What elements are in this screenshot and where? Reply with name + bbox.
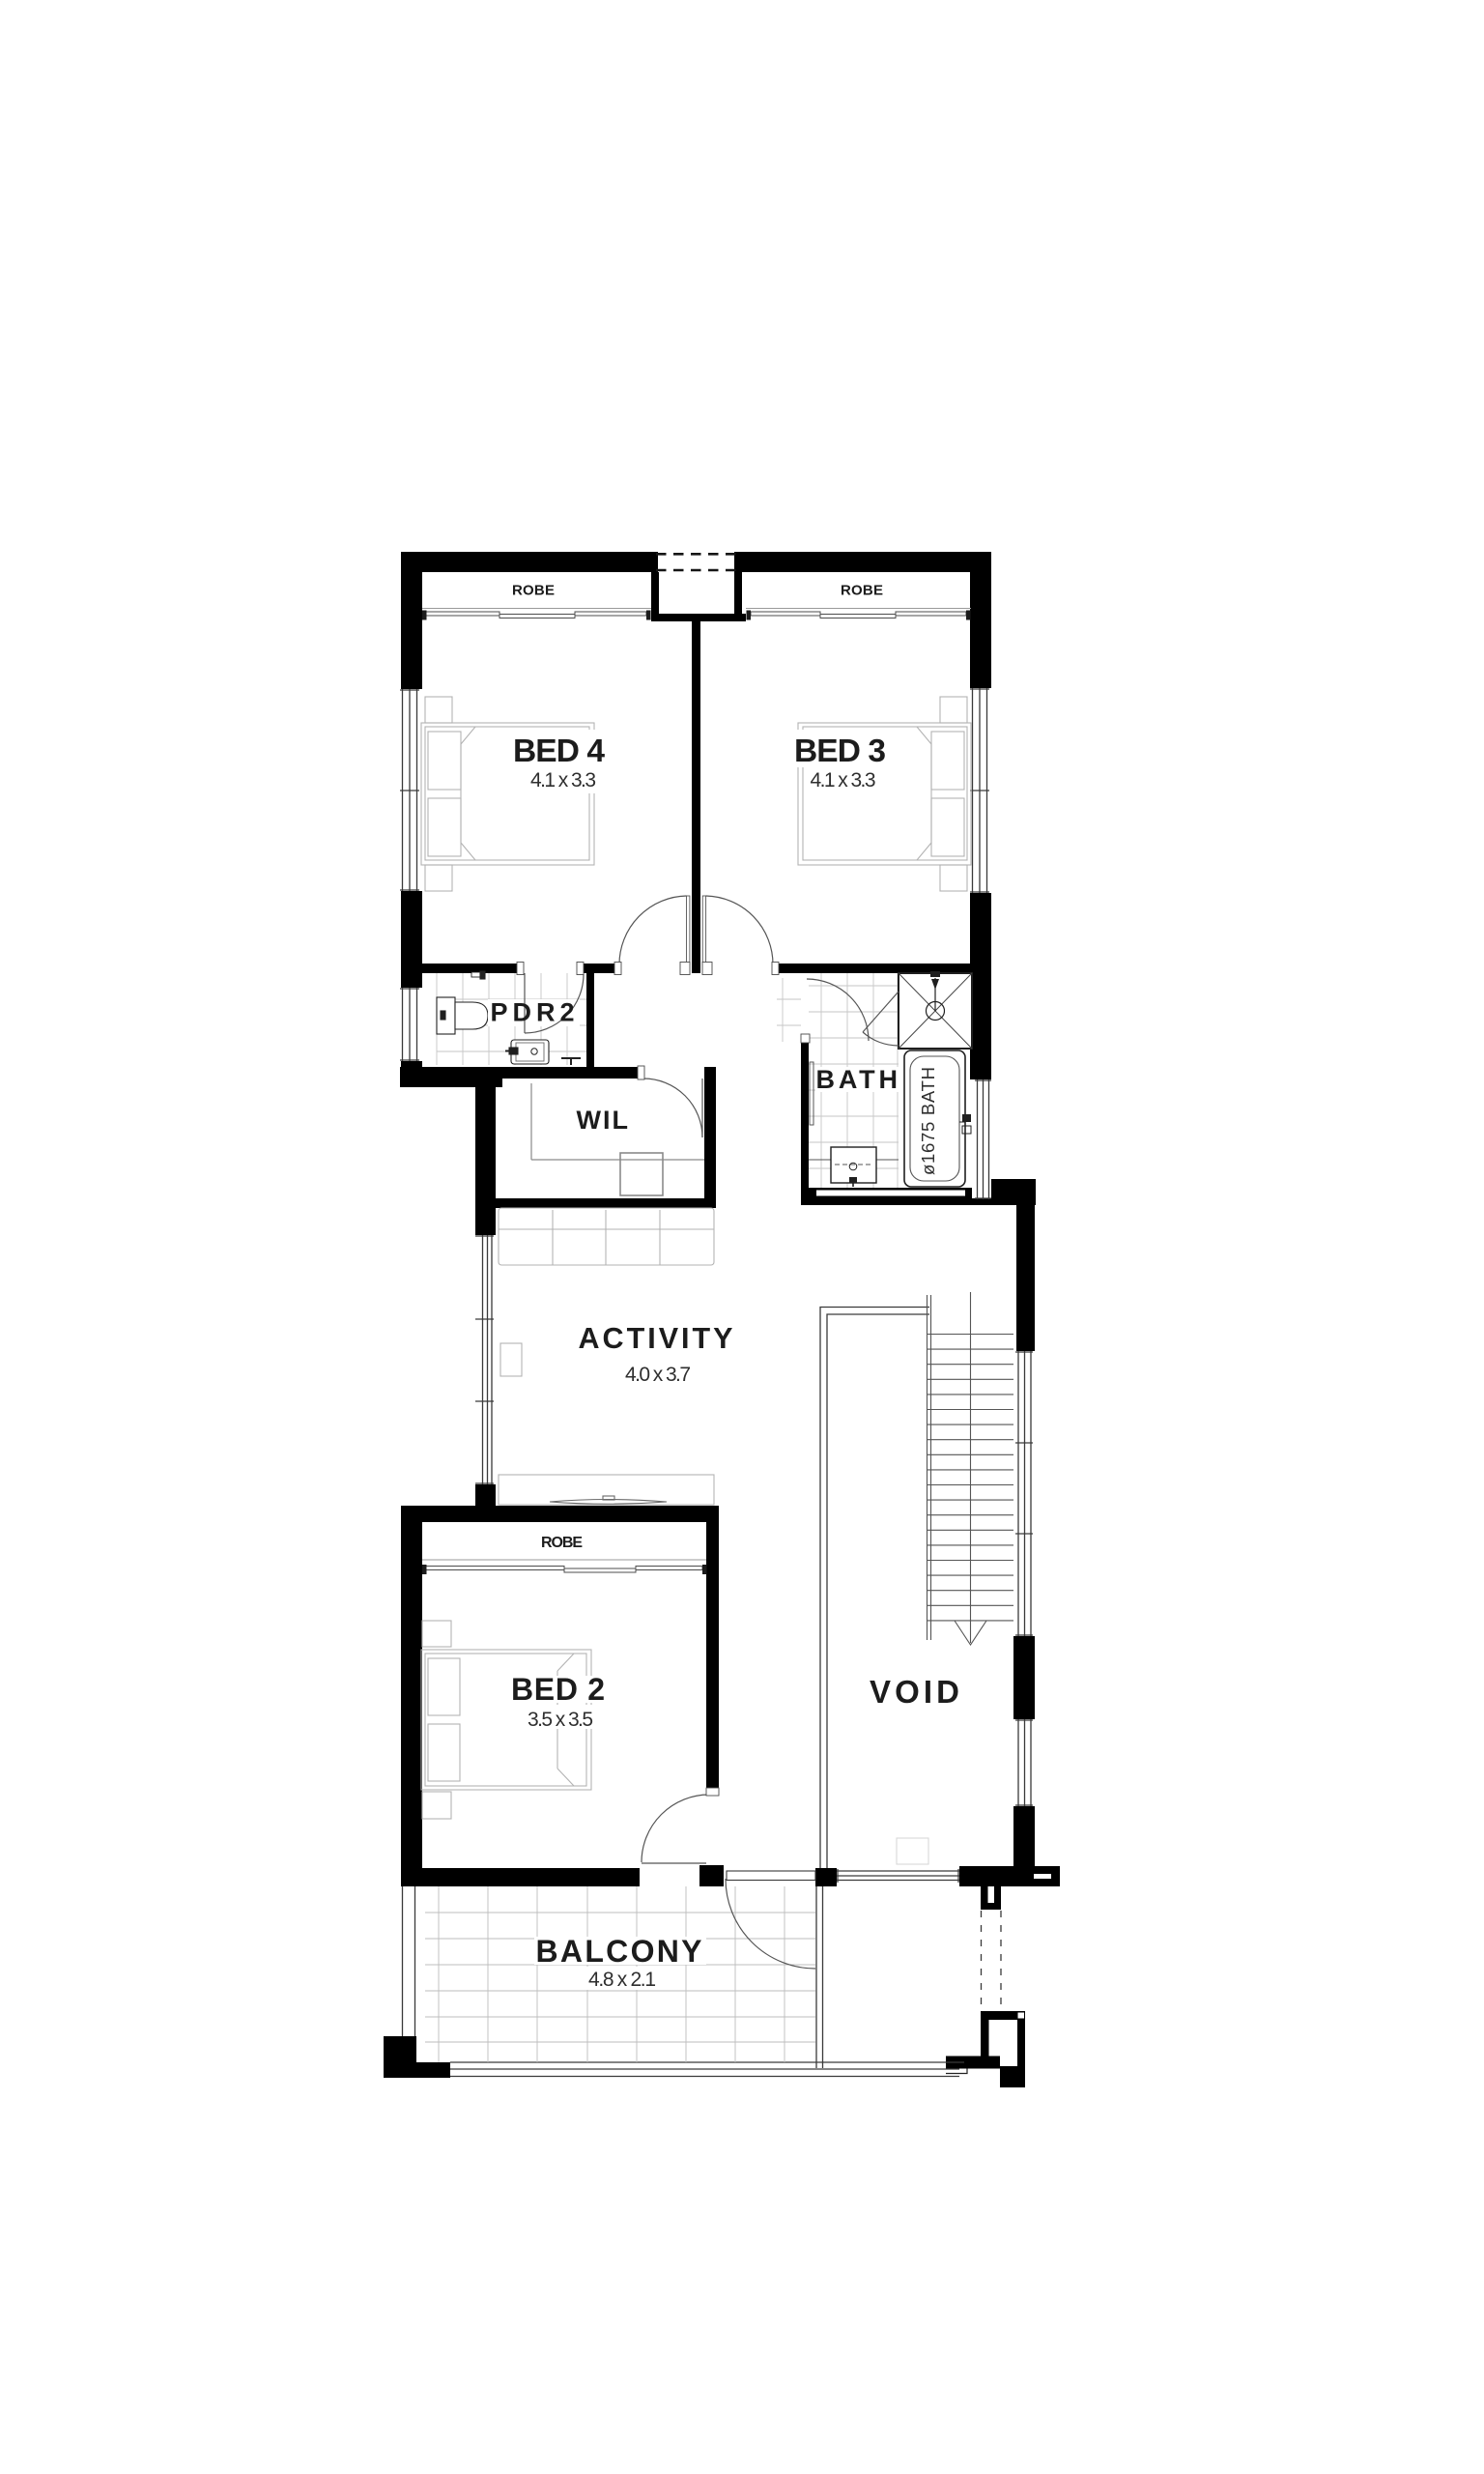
svg-text:4.8 x 2.1: 4.8 x 2.1 (588, 1969, 656, 1991)
svg-text:VOID: VOID (870, 1674, 966, 1710)
svg-text:PDR2: PDR2 (491, 998, 578, 1027)
svg-text:4.1 x 3.3: 4.1 x 3.3 (811, 769, 876, 791)
svg-text:BATH: BATH (816, 1065, 901, 1094)
svg-text:WIL: WIL (577, 1106, 632, 1135)
svg-text:BED 4: BED 4 (513, 734, 609, 769)
svg-text:4.1 x 3.3: 4.1 x 3.3 (530, 769, 596, 791)
svg-text:ROBE: ROBE (841, 583, 886, 599)
svg-text:3.5 x 3.5: 3.5 x 3.5 (528, 1709, 593, 1731)
svg-text:ø1675 BATH: ø1675 BATH (918, 1067, 938, 1175)
svg-text:BALCONY: BALCONY (536, 1934, 707, 1969)
svg-text:BED 3: BED 3 (794, 734, 890, 769)
svg-text:ROBE: ROBE (541, 1535, 585, 1551)
svg-text:4.0 x 3.7: 4.0 x 3.7 (625, 1364, 691, 1386)
svg-text:ACTIVITY: ACTIVITY (579, 1322, 738, 1355)
svg-text:ROBE: ROBE (512, 583, 557, 599)
svg-text:BED 2: BED 2 (511, 1672, 609, 1707)
